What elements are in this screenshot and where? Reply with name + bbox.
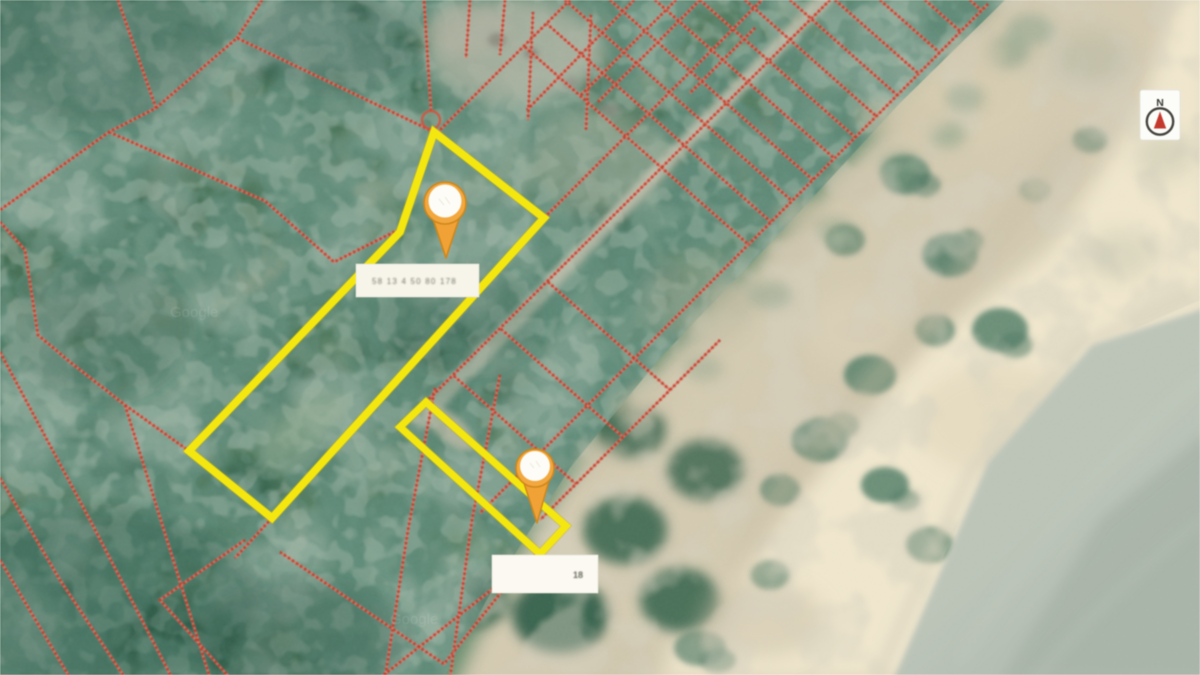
svg-text:18: 18 (573, 570, 583, 580)
svg-text:Google: Google (390, 611, 438, 628)
svg-text:58 13 4 50 80 178: 58 13 4 50 80 178 (372, 277, 457, 286)
svg-text:Google: Google (170, 304, 218, 321)
